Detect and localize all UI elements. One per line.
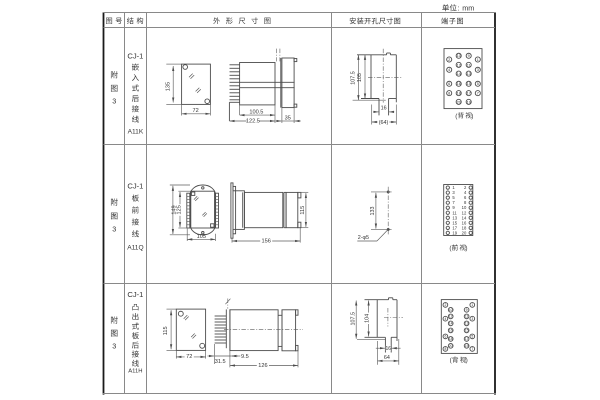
svg-text:14: 14 — [449, 322, 453, 326]
svg-text:19: 19 — [452, 230, 457, 235]
svg-text:13: 13 — [467, 72, 471, 76]
svg-text:104: 104 — [365, 314, 371, 323]
svg-text:CJ-1: CJ-1 — [127, 52, 143, 61]
svg-text:5: 5 — [471, 335, 473, 339]
svg-text:133: 133 — [370, 207, 376, 216]
svg-text:7: 7 — [471, 347, 473, 351]
svg-text:15: 15 — [465, 329, 469, 333]
svg-text:72: 72 — [186, 354, 192, 360]
svg-text:15: 15 — [467, 82, 471, 86]
svg-text:20: 20 — [457, 100, 461, 104]
svg-text:105: 105 — [357, 73, 363, 82]
svg-text:A11K: A11K — [128, 129, 144, 136]
svg-text::: : — [458, 5, 460, 12]
svg-text:CJ-1: CJ-1 — [127, 182, 143, 191]
svg-text:1: 1 — [471, 303, 473, 307]
svg-text:64: 64 — [384, 355, 390, 361]
svg-text:6: 6 — [448, 82, 450, 86]
svg-text:11: 11 — [465, 315, 469, 319]
svg-text:107.5: 107.5 — [350, 71, 356, 85]
svg-text:18: 18 — [449, 337, 453, 341]
svg-text:6: 6 — [444, 335, 446, 339]
svg-text:20: 20 — [449, 344, 453, 348]
svg-text:14: 14 — [457, 72, 461, 76]
svg-text:(: ( — [455, 113, 458, 120]
svg-text:16: 16 — [457, 82, 461, 86]
svg-text:8: 8 — [448, 91, 450, 95]
svg-text:10: 10 — [449, 308, 453, 312]
svg-text:): ) — [471, 113, 473, 120]
svg-text:122.5: 122.5 — [246, 119, 260, 125]
svg-text:12: 12 — [457, 63, 461, 67]
svg-text:): ) — [466, 357, 468, 364]
svg-text:3: 3 — [112, 341, 116, 350]
svg-text:16: 16 — [381, 106, 387, 112]
svg-text:7: 7 — [477, 91, 479, 95]
svg-text:18: 18 — [457, 91, 461, 95]
svg-text:9: 9 — [466, 308, 468, 312]
svg-text:(: ( — [450, 357, 453, 364]
svg-text:CJ-1: CJ-1 — [127, 290, 143, 299]
svg-text:31.5: 31.5 — [215, 359, 226, 365]
svg-text:115: 115 — [163, 326, 169, 335]
svg-text:135: 135 — [165, 82, 171, 91]
svg-text:12: 12 — [449, 315, 453, 319]
svg-text:(: ( — [449, 245, 452, 252]
svg-text:3: 3 — [112, 225, 116, 234]
svg-text:17: 17 — [467, 91, 471, 95]
svg-text:11: 11 — [467, 63, 471, 67]
svg-text:A11H: A11H — [128, 369, 142, 375]
svg-text:115: 115 — [300, 206, 306, 215]
svg-text:19: 19 — [465, 344, 469, 348]
svg-text:3: 3 — [112, 96, 116, 105]
svg-text:2: 2 — [448, 58, 450, 62]
svg-text:1: 1 — [477, 58, 479, 62]
svg-text:(64): (64) — [379, 120, 389, 126]
svg-text:156: 156 — [262, 239, 271, 245]
svg-text:2: 2 — [444, 303, 446, 307]
svg-text:16: 16 — [449, 329, 453, 333]
svg-text:125: 125 — [177, 205, 183, 214]
svg-text:mm: mm — [462, 3, 474, 12]
svg-text:16: 16 — [386, 346, 392, 352]
svg-text:126: 126 — [258, 363, 267, 369]
svg-text:20: 20 — [462, 230, 467, 235]
svg-text:100.5: 100.5 — [249, 110, 263, 116]
svg-text:9.5: 9.5 — [241, 354, 249, 360]
svg-text:72: 72 — [192, 108, 198, 114]
svg-text:4: 4 — [444, 317, 446, 321]
svg-text:2-φ5: 2-φ5 — [358, 235, 369, 241]
svg-text:19: 19 — [467, 100, 471, 104]
svg-text:9: 9 — [468, 54, 470, 58]
svg-text:3: 3 — [471, 317, 473, 321]
svg-text:A11Q: A11Q — [127, 244, 143, 251]
svg-text:17: 17 — [465, 337, 469, 341]
svg-text:107.5: 107.5 — [351, 312, 357, 326]
svg-text:5: 5 — [477, 82, 479, 86]
svg-text:13: 13 — [465, 322, 469, 326]
svg-text:10: 10 — [457, 54, 461, 58]
svg-text:3: 3 — [477, 68, 479, 72]
svg-text:8: 8 — [444, 347, 446, 351]
svg-text:4: 4 — [448, 68, 450, 72]
svg-text:105: 105 — [197, 234, 206, 240]
svg-text:): ) — [465, 245, 467, 252]
svg-text:35: 35 — [285, 115, 291, 121]
